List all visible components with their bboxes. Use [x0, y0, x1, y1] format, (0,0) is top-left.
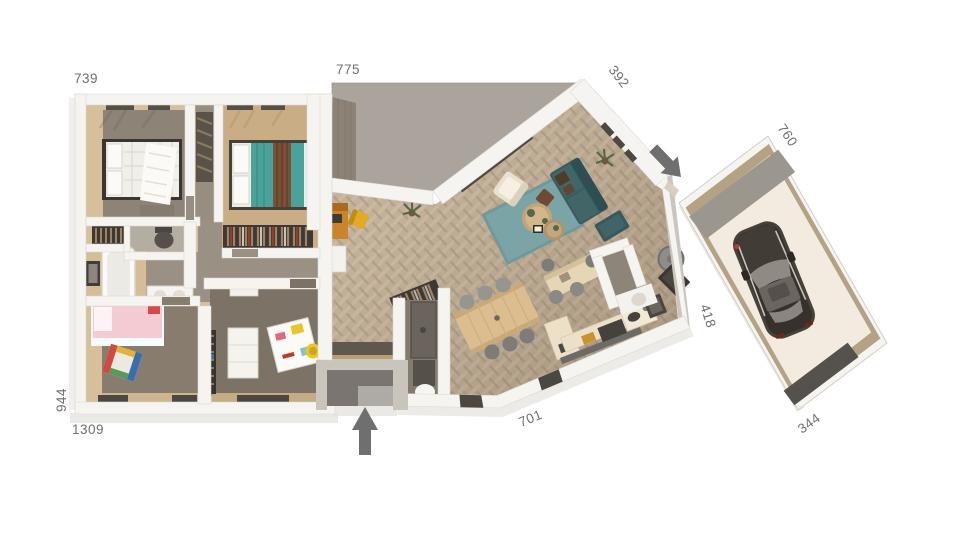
svg-text:944: 944 [54, 388, 69, 412]
svg-text:1309: 1309 [72, 422, 104, 437]
svg-text:775: 775 [336, 62, 360, 77]
svg-text:739: 739 [74, 71, 98, 86]
